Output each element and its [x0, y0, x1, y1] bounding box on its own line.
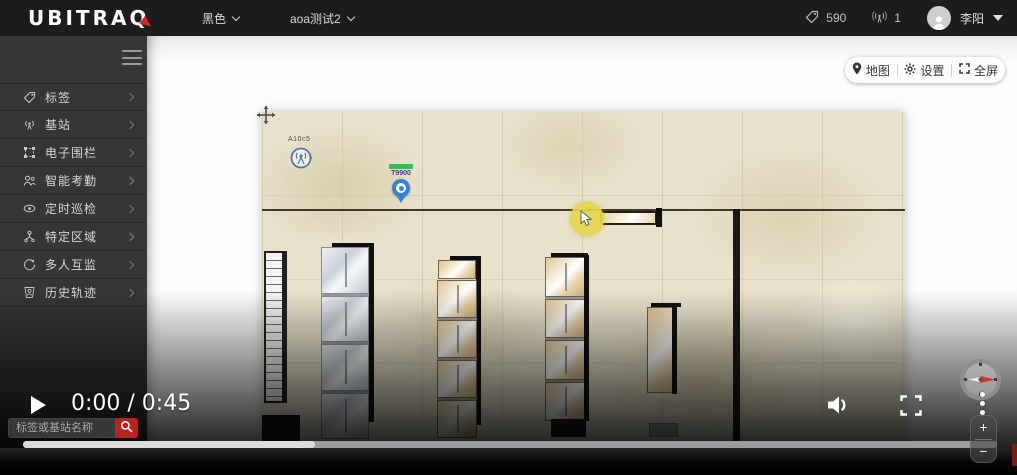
shelf-edge — [332, 243, 374, 247]
shelf-panel — [437, 280, 477, 318]
base-station-label: A10c5 — [288, 136, 310, 143]
top-bar: UBITRAQ 黑色 aoa测试2 590 1 — [0, 0, 1017, 36]
shelf-unit-1 — [321, 247, 369, 439]
shelf-panel — [321, 393, 369, 440]
zoom-control: + − — [970, 415, 997, 463]
theme-dropdown[interactable]: 黑色 — [202, 0, 239, 36]
station-count-indicator[interactable]: 1 — [872, 10, 901, 27]
search-input[interactable] — [8, 418, 115, 438]
mouse-cursor-icon — [580, 210, 594, 233]
settings-button-label: 设置 — [920, 62, 944, 79]
shelf-top-box — [438, 260, 476, 279]
map-button[interactable]: 地图 — [852, 62, 890, 79]
person-track-icon — [22, 286, 36, 300]
eye-icon — [22, 202, 36, 216]
fullscreen-icon — [959, 63, 970, 77]
chevron-right-icon — [126, 204, 134, 212]
toolbar-divider — [897, 64, 898, 77]
tag-label: T9900 — [386, 170, 416, 177]
chevron-right-icon — [126, 288, 134, 296]
shelf-base — [551, 419, 586, 437]
tag-pin-tail — [396, 195, 406, 203]
chevron-right-icon — [126, 232, 134, 240]
volume-icon — [825, 405, 852, 422]
project-dropdown-label: aoa测试2 — [290, 10, 341, 27]
user-menu[interactable]: 李阳 — [927, 6, 1003, 30]
shelf-panel — [545, 340, 585, 380]
theme-dropdown-label: 黑色 — [202, 10, 226, 27]
user-name: 李阳 — [960, 10, 984, 27]
shelf-panel — [321, 247, 369, 294]
network-icon — [22, 230, 36, 244]
top-bar-right: 590 1 李阳 — [805, 0, 1003, 36]
station-count-icon — [872, 10, 887, 27]
shelf-unit-2 — [437, 280, 477, 438]
chevron-right-icon — [126, 120, 134, 128]
fullscreen-map-button[interactable]: 全屏 — [959, 62, 998, 79]
more-options-icon[interactable] — [980, 392, 985, 415]
map-toolbar: 地图 设置 全屏 — [845, 57, 1005, 83]
small-box — [649, 423, 678, 437]
tag-icon — [22, 90, 36, 104]
tag-battery-bar — [389, 164, 413, 169]
chevron-right-icon — [126, 260, 134, 268]
clipped-red-button — [1012, 444, 1017, 466]
toolbar-divider — [951, 64, 952, 77]
base-station-marker[interactable]: A10c5 — [286, 136, 332, 176]
base-station-icon — [290, 147, 312, 174]
sidebar-item-label: 历史轨迹 — [45, 284, 97, 301]
chevron-right-icon — [126, 176, 134, 184]
fullscreen-button-label: 全屏 — [974, 62, 998, 79]
sidebar-item-label: 特定区域 — [45, 228, 97, 245]
fence-icon — [22, 146, 36, 160]
project-dropdown[interactable]: aoa测试2 — [290, 0, 354, 36]
sidebar-item-stations[interactable]: 基站 — [0, 111, 147, 139]
shelf-unit-3 — [545, 257, 585, 421]
sidebar-item-attendance[interactable]: 智能考勤 — [0, 167, 147, 195]
settings-button[interactable]: 设置 — [904, 62, 944, 79]
app-logo[interactable]: UBITRAQ — [28, 6, 152, 30]
shelf-panel — [321, 296, 369, 343]
sidebar: 标签 基站 电子围栏 智能考勤 — [0, 36, 147, 448]
time-display: 0:00 / 0:45 — [71, 391, 191, 416]
sidebar-menu: 标签 基站 电子围栏 智能考勤 — [0, 83, 147, 307]
sidebar-item-mutual-monitor[interactable]: 多人互监 — [0, 251, 147, 279]
gear-icon — [904, 63, 916, 78]
volume-button[interactable] — [825, 392, 852, 423]
fullscreen-brackets-icon — [900, 403, 922, 420]
chevron-right-icon — [126, 148, 134, 156]
tag-count-value: 590 — [826, 11, 846, 25]
shelf-edge — [369, 244, 374, 422]
stairs-base — [262, 415, 300, 442]
app-window: A10c5 T9900 — [0, 0, 1017, 475]
sidebar-item-label: 基站 — [45, 116, 71, 133]
shelf-panel — [437, 320, 477, 358]
location-pin-icon — [852, 62, 862, 78]
tag-marker[interactable]: T9900 — [384, 164, 416, 206]
menu-toggle-icon[interactable] — [122, 50, 142, 65]
sidebar-item-area[interactable]: 特定区域 — [0, 223, 147, 251]
user-avatar — [927, 6, 951, 30]
sidebar-item-label: 智能考勤 — [45, 172, 97, 189]
shelf-edge — [672, 305, 677, 394]
sidebar-item-tags[interactable]: 标签 — [0, 83, 147, 111]
bottom-bar — [0, 448, 1017, 475]
zoom-in-button[interactable]: + — [971, 416, 996, 439]
shelf-unit-4 — [647, 307, 675, 393]
chevron-down-icon — [232, 12, 240, 20]
stairs-structure — [264, 251, 287, 403]
sidebar-item-label: 标签 — [45, 89, 71, 106]
sidebar-item-label: 多人互监 — [45, 256, 97, 273]
chevron-right-icon — [126, 93, 134, 101]
shelf-panel — [545, 299, 585, 339]
floorplan-map[interactable]: A10c5 T9900 — [262, 112, 905, 448]
shelf-panel — [545, 257, 585, 297]
chevron-down-icon — [346, 12, 354, 20]
search-icon — [120, 420, 133, 436]
move-cursor-icon — [256, 105, 276, 130]
sidebar-item-label: 电子围栏 — [45, 144, 97, 161]
shelf-panel — [321, 344, 369, 391]
shelf-panel — [437, 400, 477, 438]
door-end-cap — [656, 208, 662, 227]
sidebar-item-patrol[interactable]: 定时巡检 — [0, 195, 147, 223]
highlight-position-dot — [570, 202, 604, 236]
horizontal-scrollbar[interactable] — [23, 441, 997, 448]
zoom-out-button[interactable]: − — [971, 440, 996, 463]
people-icon — [22, 174, 36, 188]
player-fullscreen-button[interactable] — [900, 395, 922, 421]
door-rect — [600, 211, 657, 225]
sidebar-item-label: 定时巡检 — [45, 200, 97, 217]
sidebar-item-history[interactable]: 历史轨迹 — [0, 279, 147, 307]
shelf-edge — [584, 255, 589, 421]
circular-arrows-icon — [22, 258, 36, 272]
user-caret-icon — [993, 15, 1003, 21]
antenna-icon — [22, 118, 36, 132]
sidebar-item-fence[interactable]: 电子围栏 — [0, 139, 147, 167]
shelf-panel — [545, 382, 585, 422]
play-button[interactable] — [31, 396, 46, 414]
search-box — [8, 418, 138, 438]
station-count-value: 1 — [894, 11, 901, 25]
map-button-label: 地图 — [866, 62, 890, 79]
wall-vertical — [733, 209, 740, 442]
tag-count-icon — [805, 10, 819, 27]
shelf-panel — [437, 360, 477, 398]
tag-count-indicator[interactable]: 590 — [805, 10, 846, 27]
search-button[interactable] — [115, 418, 138, 438]
logo-text: UBITRAQ — [28, 6, 149, 30]
scrollbar-thumb[interactable] — [23, 441, 315, 448]
